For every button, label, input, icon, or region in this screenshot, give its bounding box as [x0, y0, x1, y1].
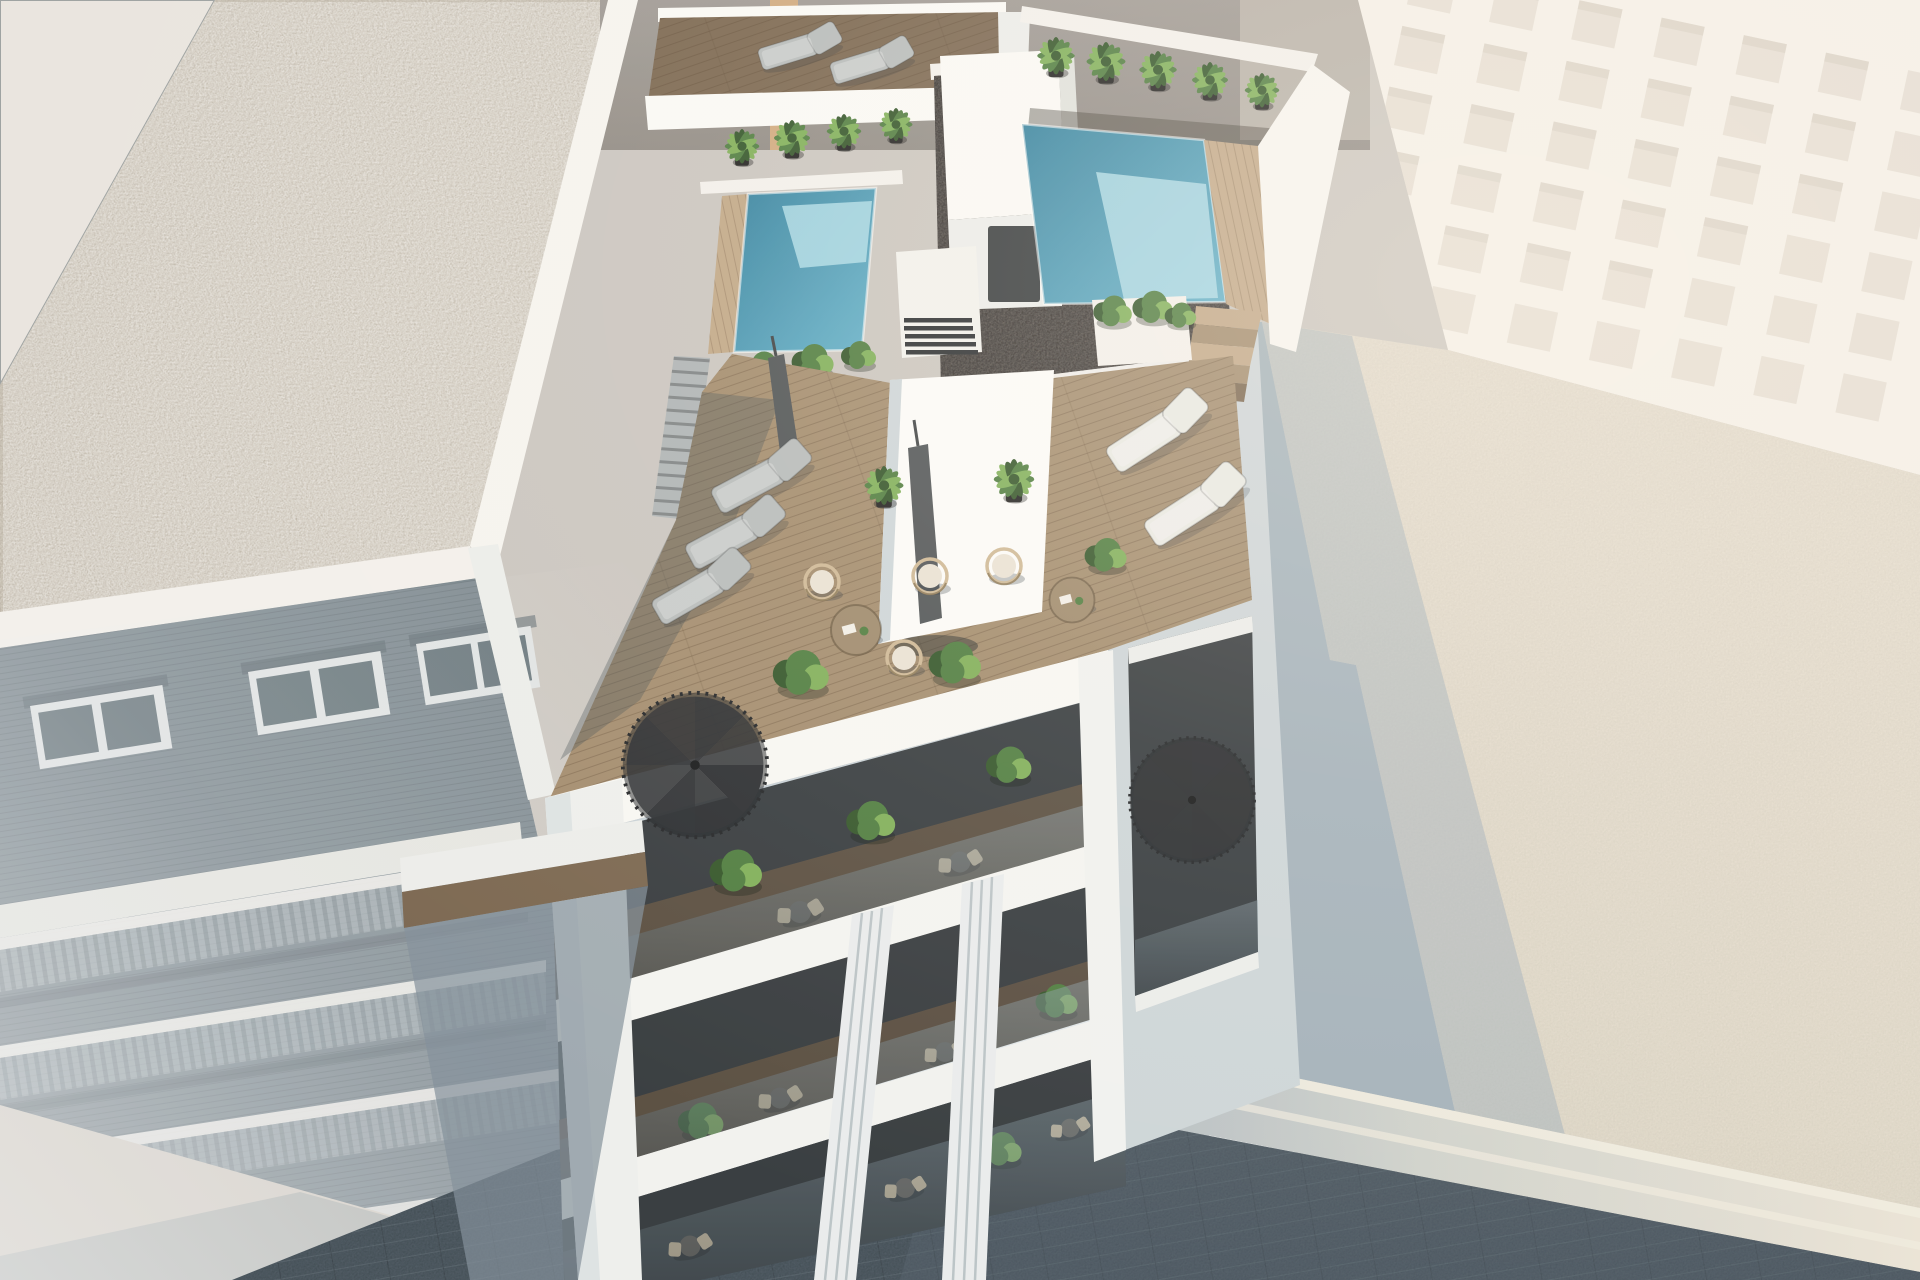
warm-tint	[0, 0, 1920, 1280]
architectural-render	[0, 0, 1920, 1280]
render-canvas	[0, 0, 1920, 1280]
